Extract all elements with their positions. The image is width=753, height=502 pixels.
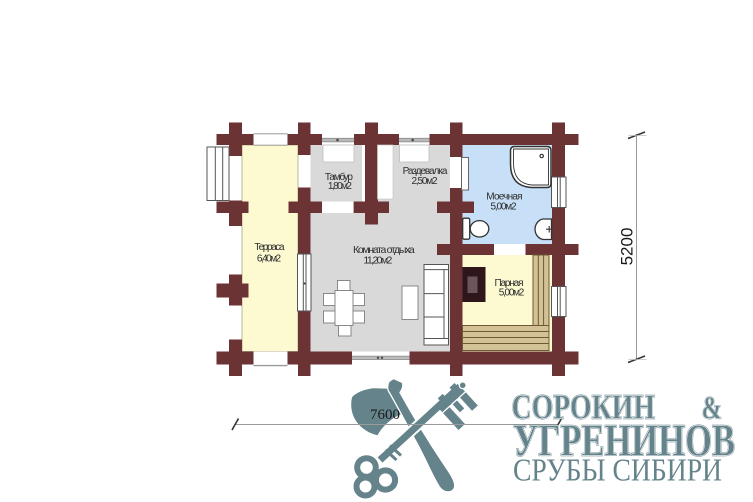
svg-text:2,50м2: 2,50м2 — [412, 176, 438, 187]
svg-text:СРУБЫ СИБИРИ: СРУБЫ СИБИРИ — [513, 452, 722, 488]
svg-text:5200: 5200 — [618, 228, 637, 266]
svg-text:7600: 7600 — [370, 407, 400, 423]
svg-text:6,40м2: 6,40м2 — [257, 254, 282, 265]
svg-text:5,00м2: 5,00м2 — [499, 288, 525, 299]
svg-text:11,20м2: 11,20м2 — [363, 255, 392, 267]
svg-text:1,80м2: 1,80м2 — [328, 181, 352, 192]
svg-text:Терраса: Терраса — [254, 242, 285, 253]
svg-text:5,00м2: 5,00м2 — [491, 202, 517, 213]
